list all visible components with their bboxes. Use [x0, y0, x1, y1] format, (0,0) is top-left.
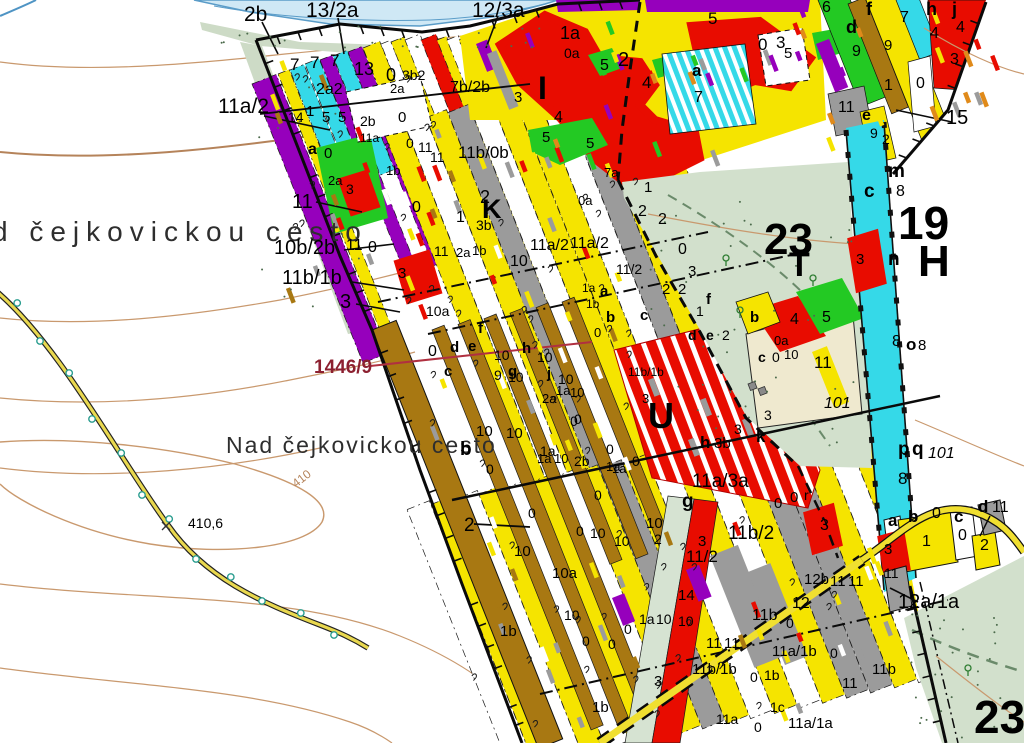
map-label-0-40: 0 — [398, 110, 406, 125]
map-label-2-53: 2 — [618, 50, 629, 70]
map-label-c-156: c — [864, 182, 875, 201]
map-label-0-71: 0 — [412, 200, 421, 216]
map-label-5-54: 5 — [600, 58, 609, 74]
map-label-0-195: 0 — [582, 634, 590, 648]
map-label-0-136: 0 — [632, 454, 640, 468]
map-label-11-219: 11 — [706, 636, 722, 651]
map-label-2-87: 2 — [678, 282, 686, 297]
map-label-2-204: 2 — [654, 532, 662, 546]
map-label-a-88: a — [600, 284, 608, 299]
map-label-12b-213: 12b — [804, 572, 829, 587]
map-label-3-153: 3 — [950, 52, 959, 68]
map-label-2a2-29: 2a2 — [316, 82, 343, 98]
map-label-3b-72: 3b — [476, 218, 492, 232]
map-label-2-96: 2 — [722, 328, 730, 342]
map-label-132a-17: 13/2a — [306, 0, 359, 21]
map-label-3b-127: 3b — [714, 436, 731, 451]
map-label-12-214: 12 — [792, 596, 810, 612]
map-label-10-194: 10 — [564, 608, 580, 622]
map-label-1-92: 1 — [696, 304, 704, 318]
map-label-1b-105: 1b — [586, 298, 599, 310]
map-label-5-37: 5 — [322, 110, 330, 125]
map-label-e-95: e — [706, 328, 714, 342]
map-label-0-230: 0 — [754, 720, 762, 734]
map-label-0-83: 0 — [678, 242, 687, 258]
map-label-11a-229: 11a — [716, 712, 738, 726]
map-label-u-8: U — [648, 398, 674, 434]
map-label-0a-99: 0a — [774, 334, 788, 347]
map-label-3-232: 3 — [654, 674, 662, 689]
map-label-11b1b-132: 11b/1b — [628, 366, 664, 378]
map-label-1b-202: 1b — [500, 624, 517, 639]
map-label-2-173: 2 — [980, 538, 989, 554]
map-label-11a1a-231: 11a/1a — [788, 716, 833, 731]
map-label-3-85: 3 — [688, 264, 696, 279]
map-label-3-23: 3 — [340, 292, 351, 312]
map-label-4-62: 4 — [554, 110, 563, 126]
map-label-r-210: r — [804, 488, 809, 502]
map-viewport[interactable]: d čejkovickou cestoNad čejkovickou cesto… — [0, 0, 1024, 743]
map-label-101-14: 101 — [824, 396, 851, 412]
map-label-3-66: 3 — [514, 90, 522, 105]
map-label-1-80: 1 — [644, 180, 652, 195]
map-label-10-115: 10 — [494, 348, 510, 362]
map-label-g-134: g — [682, 492, 694, 511]
map-label-7a-65: 7a — [604, 166, 618, 179]
map-label-e-146: e — [862, 108, 871, 124]
map-label-10-125: 10 — [554, 452, 568, 465]
map-label-h-126: h — [700, 434, 710, 451]
map-label-5-63: 5 — [542, 130, 550, 145]
map-label-c-100: c — [758, 350, 766, 364]
map-label-11-76: 11 — [434, 244, 449, 258]
map-label-10-102: 10 — [784, 348, 798, 361]
map-label-4-97: 4 — [790, 312, 799, 328]
map-label-7-28: 7 — [330, 52, 339, 69]
map-label-j-150: j — [952, 0, 957, 18]
map-label-11-48: 11 — [430, 150, 445, 164]
map-label-0a-67: 0a — [578, 194, 592, 207]
map-label-c-90: c — [640, 308, 648, 323]
map-label-3-131: 3 — [642, 392, 649, 405]
map-label-0-169: 0 — [958, 528, 967, 544]
map-label-0-184: 0 — [606, 442, 614, 456]
map-label-2-86: 2 — [662, 282, 670, 297]
map-label-10a-79: 10a — [426, 304, 449, 318]
map-label-10-118: 10 — [508, 370, 524, 384]
map-label-0-200: 0 — [608, 637, 616, 651]
map-label-0-188: 0 — [576, 524, 584, 538]
map-label-4106-11: 410,6 — [188, 516, 223, 530]
map-label-4-55: 4 — [642, 74, 651, 91]
map-label-0-225: 0 — [830, 646, 838, 660]
map-label-10-198: 10 — [678, 614, 694, 628]
map-label-0-187: 0 — [528, 506, 536, 520]
map-label-o-159: o — [906, 336, 916, 353]
map-label-11-226: 11 — [842, 676, 858, 691]
map-label-11a2-74: 11a/2 — [570, 236, 609, 252]
map-label-2-69: 2 — [480, 188, 490, 206]
map-label-0-101: 0 — [772, 350, 780, 364]
map-label-0-208: 0 — [774, 496, 782, 511]
map-label-11b-227: 11b — [872, 662, 896, 677]
map-label-a-165: a — [888, 512, 897, 529]
map-label-7-59: 7 — [694, 90, 703, 106]
map-label-11b1b-22: 11b/1b — [282, 268, 342, 288]
map-label-e-109: e — [468, 339, 476, 354]
map-label-10-190: 10 — [614, 534, 630, 548]
map-label-1c-228: 1c — [770, 700, 785, 714]
map-label-11b2-207: 11b/2 — [728, 524, 774, 543]
map-label-15-13: 15 — [946, 108, 968, 128]
map-label-10-180: 10 — [506, 426, 523, 441]
map-label-1a-51: 1a — [560, 24, 580, 42]
map-label-23-7: 23 — [974, 694, 1024, 740]
map-label-8-158: 8 — [892, 334, 901, 350]
map-label-0-209: 0 — [790, 490, 798, 505]
map-label-10-122: 10 — [570, 386, 584, 399]
map-label-1b-223: 1b — [764, 668, 780, 682]
map-label-112-206: 11/2 — [686, 548, 718, 565]
map-label-11a3a-133: 11a/3a — [692, 472, 749, 491]
map-label-11b0b-68: 11b/0b — [458, 144, 509, 161]
map-label-2-148: 2 — [882, 132, 890, 146]
map-label-f-91: f — [706, 292, 711, 307]
map-label-i-9: I — [538, 72, 547, 104]
map-label-5-38: 5 — [338, 110, 346, 125]
map-label-2-81: 2 — [638, 204, 647, 220]
map-label-13-30: 13 — [354, 60, 374, 78]
map-label-7-27: 7 — [310, 54, 319, 71]
map-label-0-186: 0 — [486, 462, 494, 476]
map-label-1-70: 1 — [456, 210, 465, 226]
map-label-9-147: 9 — [870, 126, 878, 140]
map-label-10-197: 10 — [656, 612, 672, 626]
map-label-d-94: d — [688, 328, 697, 342]
map-label-d-170: d — [978, 498, 988, 515]
map-label-h-6: H — [918, 240, 950, 284]
map-label-10-189: 10 — [590, 526, 606, 540]
map-label-1a-185: 1a — [612, 462, 626, 475]
map-label-1-36: 1 — [306, 104, 314, 119]
map-label-0-46: 0 — [406, 136, 414, 150]
map-label-0-181: 0 — [570, 414, 578, 428]
map-label-3-211: 3 — [820, 518, 829, 534]
map-label-0-222: 0 — [750, 670, 758, 684]
map-label-7-143: 7 — [900, 10, 909, 26]
map-label-d-138: d — [846, 18, 857, 36]
map-label-1-141: 1 — [884, 78, 893, 94]
map-label-11-215: 11 — [830, 574, 846, 589]
map-label-14-205: 14 — [678, 588, 695, 603]
map-label-11a-45: 11a — [360, 132, 379, 144]
map-label-q-163: q — [912, 440, 924, 459]
map-label-7-26: 7 — [290, 56, 299, 73]
map-label-8-164: 8 — [898, 470, 907, 487]
map-label-n-157: n — [888, 250, 900, 269]
map-label-1b-49: 1b — [386, 164, 400, 177]
map-label-2b-39: 2b — [360, 114, 376, 128]
map-label-0-25: 0 — [368, 240, 377, 256]
map-label-a-58: a — [692, 62, 701, 79]
map-label-1a-182: 1a — [540, 444, 556, 458]
map-label-0-42: 0 — [324, 146, 332, 161]
map-label-c-168: c — [954, 508, 963, 525]
map-label-3-161: 3 — [856, 252, 864, 267]
map-label-3-212: 3 — [698, 534, 706, 549]
map-label-11b1b-221: 11b/1b — [692, 662, 737, 677]
map-label-10-203: 10 — [646, 516, 663, 531]
map-label-p-162: p — [898, 440, 910, 459]
map-label-0-167: 0 — [932, 506, 941, 522]
map-label-m-154: m — [888, 162, 905, 181]
map-label-k-128: k — [756, 428, 765, 445]
map-label-0-60: 0 — [758, 36, 767, 53]
map-label-1a-104: 1a — [582, 282, 595, 294]
map-label-3b2-32: 3b2 — [402, 68, 425, 82]
map-label-6-137: 6 — [822, 0, 831, 16]
map-label-3-174: 3 — [884, 542, 892, 557]
map-label-10-116: 10 — [537, 350, 553, 364]
map-label-4-151: 4 — [930, 26, 939, 42]
map-label-5-64: 5 — [586, 136, 594, 151]
map-label-123a-18: 12/3a — [472, 0, 525, 21]
map-label-11-171: 11 — [992, 500, 1009, 516]
map-label-d-108: d — [450, 340, 459, 355]
map-label-f-140: f — [866, 0, 872, 18]
map-label-10-179: 10 — [476, 424, 493, 439]
map-label-1a-121: 1a — [556, 384, 570, 397]
map-label-10a-193: 10a — [552, 566, 577, 581]
map-label-11-145: 11 — [838, 100, 855, 116]
map-label-b-166: b — [908, 508, 918, 525]
map-label-10b2b-21: 10b/2b — [274, 238, 335, 258]
map-label-h-112: h — [522, 341, 531, 356]
map-label-0-114: 0 — [428, 344, 437, 360]
map-label-1b-201: 1b — [592, 700, 609, 715]
map-label-b-93: b — [750, 310, 759, 325]
map-label-t-4: T — [789, 248, 810, 282]
map-label-3-130: 3 — [764, 408, 772, 422]
map-label-c-107: c — [444, 364, 452, 379]
map-label-11-216: 11 — [848, 574, 864, 589]
map-label-8-155: 8 — [896, 184, 905, 200]
map-label-2a-120: 2a — [542, 392, 556, 405]
map-label-2a-43: 2a — [328, 174, 342, 187]
map-label-11-103: 11 — [814, 354, 832, 371]
map-label-a-41: a — [308, 142, 317, 158]
map-label-4-152: 4 — [956, 20, 965, 36]
map-label-9-117: 9 — [494, 368, 502, 382]
map-label-10-192: 10 — [514, 544, 531, 559]
map-label-1a-196: 1a — [639, 612, 655, 626]
map-label-2-178: 2 — [464, 516, 475, 535]
map-label-f-110: f — [478, 321, 483, 336]
map-label-j-113: j — [547, 366, 551, 381]
map-label-11a1b-224: 11a/1b — [772, 644, 817, 659]
map-label-14-35: 14 — [288, 110, 304, 124]
map-label-0-106: 0 — [594, 326, 601, 339]
map-label-3-44: 3 — [346, 182, 354, 196]
map-label-3-129: 3 — [734, 422, 742, 436]
map-label-b-89: b — [606, 310, 615, 325]
map-label-9-142: 9 — [884, 38, 892, 53]
map-label-2a-77: 2a — [456, 246, 470, 259]
map-label-2b-183: 2b — [574, 454, 590, 468]
map-label-2a-33: 2a — [390, 82, 404, 95]
map-label-2-82: 2 — [658, 212, 667, 228]
map-label-0-218: 0 — [786, 616, 794, 630]
map-label-11-20: 11 — [292, 192, 313, 212]
map-label-0-191: 0 — [594, 488, 602, 502]
map-label-3-50: 3 — [398, 266, 406, 281]
map-label-2b-16: 2b — [244, 4, 267, 25]
map-label-7b2b-34: 7b/2b — [450, 80, 490, 96]
map-label-8-160: 8 — [918, 338, 926, 353]
map-label-11-24: 11 — [346, 238, 363, 254]
map-label-14469-2: 1446/9 — [314, 358, 372, 377]
map-label-1b-78: 1b — [472, 244, 486, 257]
map-label-11-175: 11 — [884, 566, 899, 580]
map-label-11a2-73: 11a/2 — [530, 238, 569, 254]
map-label-5-61: 5 — [784, 46, 792, 61]
map-label-0-199: 0 — [624, 622, 632, 636]
map-label-5-98: 5 — [822, 310, 831, 326]
map-label-11a2-19: 11a/2 — [218, 96, 269, 117]
map-label-nadejkovickoucesto-1: Nad čejkovickou cesto — [226, 434, 497, 457]
map-label-1-172: 1 — [922, 534, 931, 550]
map-label-0-144: 0 — [916, 76, 925, 92]
map-label-11b-217: 11b — [752, 608, 778, 624]
map-label-10-75: 10 — [510, 254, 528, 270]
map-label-112-84: 11/2 — [616, 262, 642, 276]
map-label-h-149: h — [926, 0, 937, 18]
map-label-0a-52: 0a — [564, 46, 580, 60]
map-label-12a1a-176: 12a/1a — [898, 592, 959, 612]
map-label-b-177: b — [460, 440, 472, 459]
map-label-9-139: 9 — [852, 44, 861, 60]
map-label-11-220: 11 — [724, 636, 740, 651]
map-label-5-56: 5 — [708, 10, 717, 27]
map-label-101-15: 101 — [928, 446, 955, 462]
